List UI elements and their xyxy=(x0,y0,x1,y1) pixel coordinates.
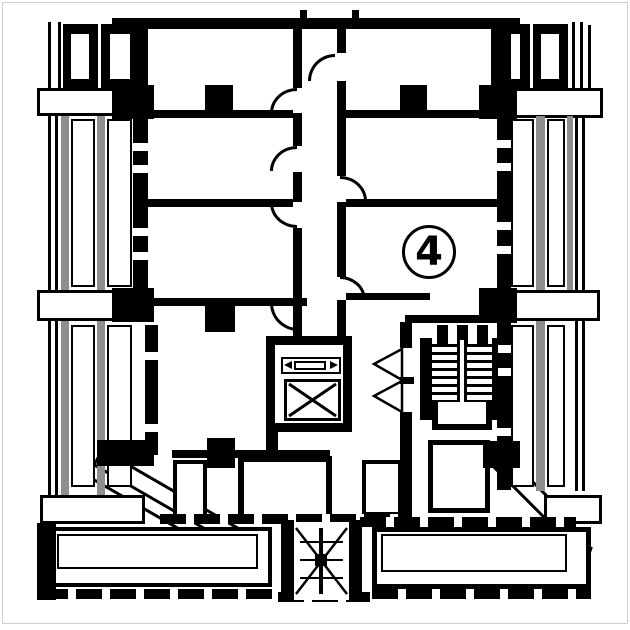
stair-rail-left xyxy=(420,338,432,420)
rightbay-window-2 xyxy=(547,119,565,287)
rightbay-thin-3 xyxy=(588,25,591,90)
corridor-rightwall-1 xyxy=(337,25,346,53)
rightwall-notch-4 xyxy=(497,246,511,254)
corridor-rightwall-2 xyxy=(337,81,346,176)
rightbay-slab-2 xyxy=(514,290,600,321)
leftwall-notch-6 xyxy=(145,424,158,432)
rightwall-notch-3 xyxy=(497,222,511,230)
leftwall-notch-2 xyxy=(133,165,148,173)
diag-left-block xyxy=(97,440,154,466)
leftbay-mullion-3 xyxy=(61,321,69,495)
elevator-x-icon xyxy=(287,382,338,418)
elevator-arrow-right-icon xyxy=(330,361,338,369)
leftbay-line-2 xyxy=(55,116,58,290)
double-door-icon xyxy=(366,340,414,420)
corridor-leftwall-3 xyxy=(293,172,302,202)
elevator-door-panel xyxy=(294,361,326,370)
terrace-box-4 xyxy=(428,440,490,513)
rightbay-mullion-3 xyxy=(536,321,545,491)
rightbay-thin-1 xyxy=(572,22,575,90)
terrace-box-2 xyxy=(238,456,332,520)
leftbay-line-1 xyxy=(48,116,51,290)
corridor-rightwall-3 xyxy=(337,202,346,277)
corridor-leftwall-2 xyxy=(293,113,302,146)
rightbay-line-3 xyxy=(575,321,578,491)
top-wall xyxy=(112,18,520,29)
top-tick-left xyxy=(300,10,307,18)
leftwall-upper xyxy=(133,25,148,303)
leftbay-window-3 xyxy=(71,325,95,487)
top-tick-right xyxy=(352,10,359,18)
leftbay-slab-3 xyxy=(40,495,145,524)
escape-rail-left xyxy=(281,520,294,602)
rightbay-line-2 xyxy=(582,116,585,290)
leftbay-thin-2 xyxy=(58,22,61,90)
leftbay-slab-2 xyxy=(37,290,115,321)
unit-number-badge: 4 xyxy=(402,225,456,279)
rightwall-notch-2 xyxy=(497,163,511,171)
leftbay-window-b xyxy=(108,32,132,81)
leftbay-mullion-2 xyxy=(97,116,105,290)
wall2-right xyxy=(346,199,497,207)
balcony-left-inner xyxy=(57,534,258,569)
leftbay-window-a xyxy=(69,32,91,81)
stair-stringer xyxy=(457,340,467,408)
stair-stub-1 xyxy=(437,325,448,344)
leftbay-line-4 xyxy=(55,321,58,495)
leftwall-notch-4 xyxy=(133,252,148,260)
terrace-box-3 xyxy=(362,460,402,516)
unit-number-text: 4 xyxy=(415,229,443,275)
leftwall-notch-3 xyxy=(133,228,148,236)
bottomroom-column xyxy=(207,438,235,468)
rightbay-slab-1 xyxy=(514,88,603,118)
escape-stair-icon xyxy=(294,522,349,600)
rightbay-window-1 xyxy=(511,119,534,287)
rightbay-window-b xyxy=(539,32,561,81)
wall3-column-left xyxy=(205,306,235,332)
rightbay-line-1 xyxy=(575,116,578,290)
wall1-column-left xyxy=(205,85,233,118)
rightbay-thin-2 xyxy=(580,22,583,90)
leftwall-lower xyxy=(145,325,158,455)
rightbay-mullion-1 xyxy=(536,116,545,290)
leftwall-notch-1 xyxy=(133,143,148,151)
balcony-left-dash xyxy=(42,589,272,599)
terrace-band-right xyxy=(360,517,576,527)
rightwall xyxy=(497,25,511,490)
escape-rail-right xyxy=(349,520,362,602)
leftwall-notch-5 xyxy=(145,352,158,360)
rightwall-notch-6 xyxy=(497,368,511,376)
rightbay-window-4 xyxy=(547,325,565,487)
balcony-right-dash xyxy=(372,589,591,599)
stair-stub-3 xyxy=(477,325,488,344)
rightwall-notch-1 xyxy=(497,140,511,148)
leftbay-corner xyxy=(37,523,56,600)
rightwall-notch-5 xyxy=(497,345,511,353)
leftbay-line-3 xyxy=(48,321,51,495)
elevator-arrow-left-icon xyxy=(284,361,292,369)
elevator-car-icon xyxy=(284,379,341,421)
leftbay-window-1 xyxy=(71,119,95,287)
balcony-right-inner xyxy=(381,534,567,572)
corridor-leftwall-1 xyxy=(293,25,302,88)
balcony-left-line xyxy=(42,583,272,587)
rightbay-line-4 xyxy=(582,321,585,491)
corridor-rightwall-4 xyxy=(337,300,346,338)
leftbay-mullion-1 xyxy=(61,116,69,290)
wall1-column-right xyxy=(400,85,427,118)
leftbay-thin-1 xyxy=(48,22,51,90)
terrace-box-1 xyxy=(173,460,207,518)
stair-landing xyxy=(432,402,492,430)
rightbay-mullion-2 xyxy=(567,116,573,290)
diag-right-block xyxy=(483,441,520,468)
rightwall-notch-7 xyxy=(497,428,511,436)
stair-rail-right xyxy=(492,338,498,420)
floor-plan-canvas: 4 xyxy=(0,0,630,630)
leftbay-window-2 xyxy=(107,119,132,287)
leftbay-mullion-4 xyxy=(97,321,105,495)
wall3-column-right xyxy=(486,288,517,323)
